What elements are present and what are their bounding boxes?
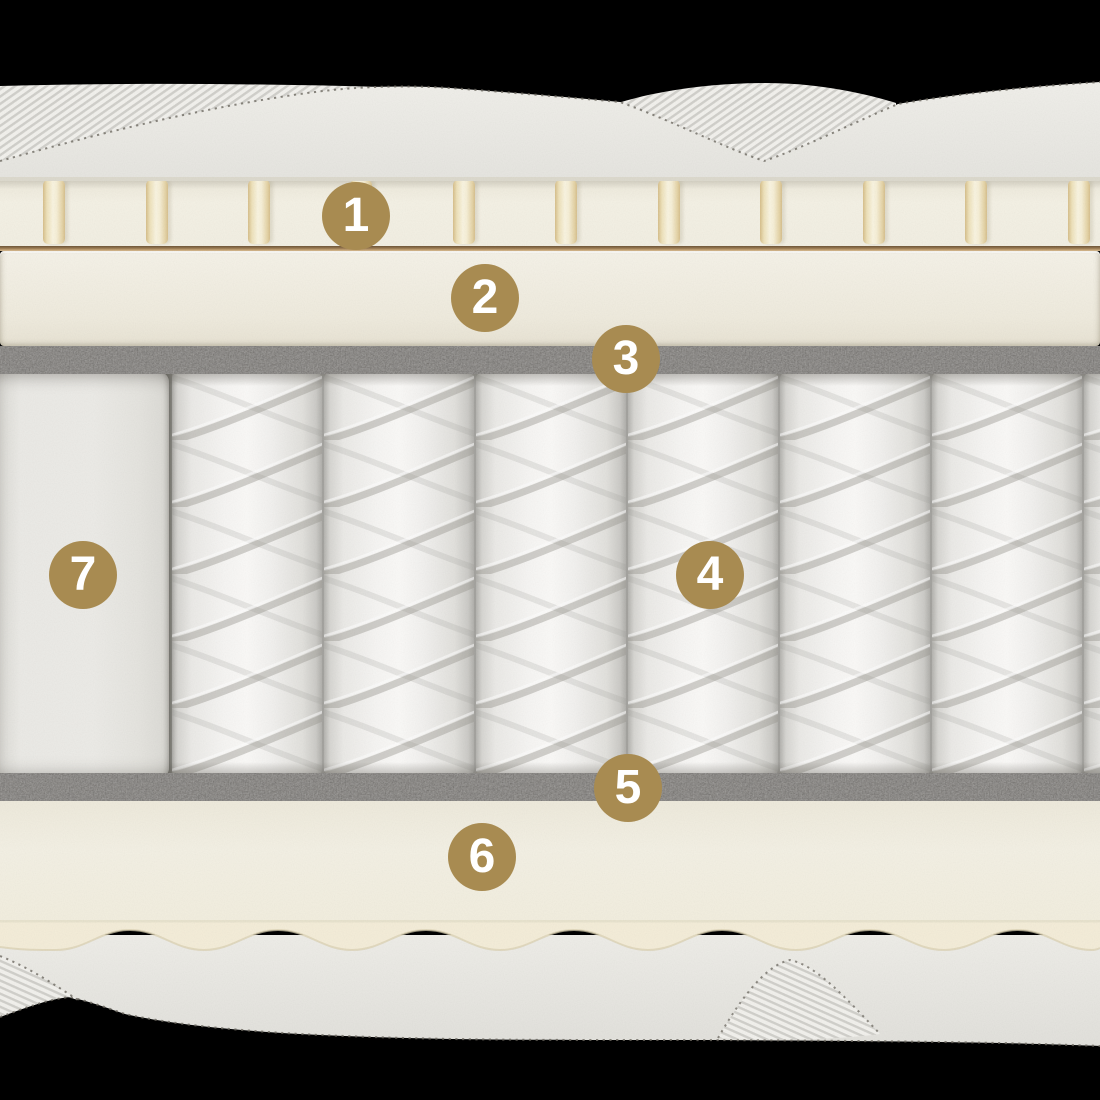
layer-badge-3: 3 xyxy=(592,325,660,393)
quilted-cover-bottom xyxy=(0,920,1100,1100)
felt-pad-top xyxy=(0,346,1100,374)
spring-pocket xyxy=(324,373,474,775)
foam-slat xyxy=(248,180,270,244)
spring-pocket xyxy=(932,373,1082,775)
foam-slat xyxy=(863,180,885,244)
mattress-cross-section-diagram: 1 2 3 4 5 6 7 xyxy=(0,0,1100,1100)
foam-slat xyxy=(453,180,475,244)
foam-slat xyxy=(146,180,168,244)
layer-badge-2: 2 xyxy=(451,264,519,332)
layer-badge-7: 7 xyxy=(49,541,117,609)
grooved-foam-layer xyxy=(0,179,1100,246)
base-foam-layer xyxy=(0,801,1100,922)
quilted-cover-top xyxy=(0,0,1100,181)
foam-slat xyxy=(555,180,577,244)
cover-quilt-surface-bottom xyxy=(0,935,1100,1046)
spring-pocket xyxy=(1084,373,1100,775)
foam-slat xyxy=(43,180,65,244)
layer-badge-4: 4 xyxy=(676,541,744,609)
spring-pocket xyxy=(780,373,930,775)
foam-slat xyxy=(1068,180,1090,244)
layer-badge-1: 1 xyxy=(322,182,390,250)
layer-badge-6: 6 xyxy=(448,823,516,891)
layer-badge-5: 5 xyxy=(594,754,662,822)
foam-slat xyxy=(965,180,987,244)
felt-pad-bottom xyxy=(0,773,1100,801)
spring-pocket xyxy=(476,373,626,775)
foam-slat xyxy=(658,180,680,244)
spring-pocket xyxy=(172,373,322,775)
cover-bottom-edge xyxy=(0,177,1100,181)
foam-slat xyxy=(760,180,782,244)
comfort-foam-layer xyxy=(0,251,1100,346)
